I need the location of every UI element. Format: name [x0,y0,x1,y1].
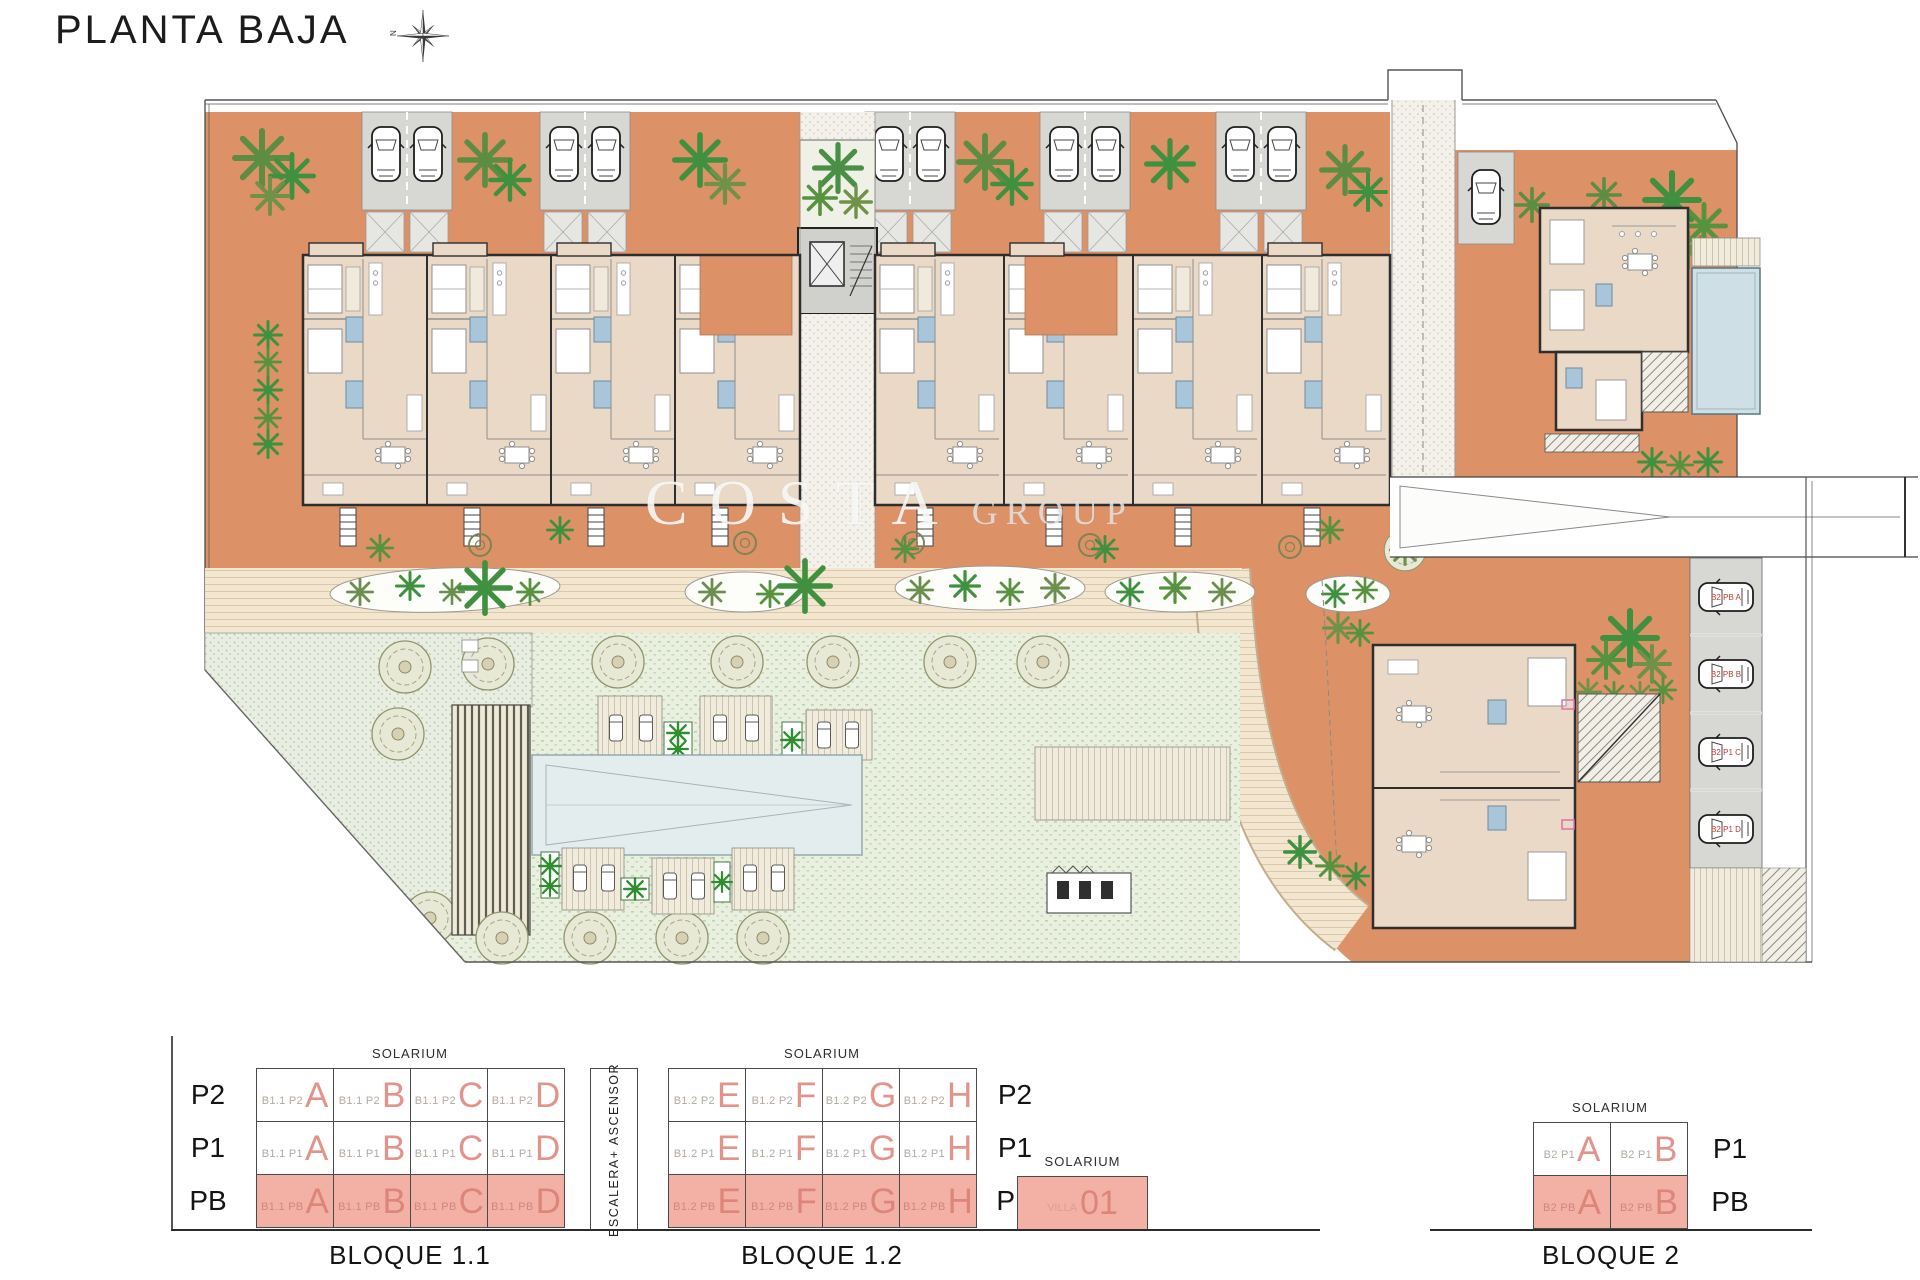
unit-cell-b12-p2-e: B1.2 P2E [669,1069,746,1122]
unit-cell-b2-pb-a: B2 PBA [1534,1176,1611,1229]
unit-cell-b2-p1-b: B2 P1B [1611,1123,1688,1176]
inner-patio [1025,255,1117,335]
floor-label-p1: P1 [170,1121,246,1174]
unit-cell-b12-p1-f: B1.2 P1F [746,1122,823,1175]
unit-cell-b12-p1-e: B1.2 P1E [669,1122,746,1175]
floor-label-p2: P2 [170,1068,246,1121]
unit-cell-b12-p1-g: B1.2 P1G [823,1122,900,1175]
compass-north-label: N [389,30,398,36]
unit-cell-b11-pb-a: B1.1 PBA [257,1175,334,1228]
bloque-1-1-title: BLOQUE 1.1 [256,1240,564,1271]
plan-sheet: B2 PB A B2 PB B B2 P1 C B2 P1 D PLANTA B… [0,0,1920,1280]
solarium-label-bloque11: SOLARIUM [256,1046,564,1061]
unit-cell-b11-p1-d: B1.1 P1D [488,1122,565,1175]
unit-cell-b12-pb-h: B1.2 PBH [900,1175,977,1228]
deck-band [1035,747,1230,820]
solarium-label-villa: SOLARIUM [1017,1154,1148,1169]
deck-planter [712,862,732,902]
car-icon [1088,127,1124,181]
solarium-label-bloque12: SOLARIUM [668,1046,976,1061]
unit-cell-b11-p1-b: B1.1 P1B [334,1122,411,1175]
unit-cell-b11-p2-b: B1.1 P2B [334,1069,411,1122]
unit-cell-b11-p2-d: B1.1 P2D [488,1069,565,1122]
pergola [452,705,530,935]
car-icon [546,127,582,181]
unit-cell-b12-p2-h: B1.2 P2H [900,1069,977,1122]
parking-label: B2 P1 C [1711,748,1741,757]
car-icon [588,127,624,181]
car-icon [1222,127,1258,181]
unit-cell-b12-pb-f: B1.2 PBF [746,1175,823,1228]
legend-ground-line [171,1229,1320,1231]
unit-cell-b12-pb-g: B1.2 PBG [823,1175,900,1228]
unit-cell-b2-pb-b: B2 PBB [1611,1176,1688,1229]
unit-cell-b12-p2-g: B1.2 P2G [823,1069,900,1122]
central-core-strip [798,112,877,633]
legend-ground-line [1430,1229,1812,1231]
car-icon [1046,127,1082,181]
villa-parking-bay [1458,152,1514,244]
unit-cell-b11-pb-d: B1.1 PBD [488,1175,565,1228]
car-icon [871,127,907,181]
north-gravel-path [1392,100,1455,477]
car-icon [368,127,404,181]
unit-cell-b11-p2-c: B1.1 P2C [411,1069,488,1122]
watermark: COSTA GROUP [645,466,1134,540]
page-title: PLANTA BAJA [55,8,350,53]
bloque-2-legend-grid: B2 P1A B2 P1B B2 PBA B2 PBB [1533,1122,1688,1229]
unit-cell-b12-p2-f: B1.2 P2F [746,1069,823,1122]
watermark-word2: GROUP [972,491,1134,533]
car-icon [410,127,446,181]
floor-label-p1-bloque2: P1 [1695,1122,1765,1175]
unit-cell-b12-p1-h: B1.2 P1H [900,1122,977,1175]
bloque-2-title: BLOQUE 2 [1533,1240,1689,1271]
unit-cell-b11-pb-b: B1.1 PBB [334,1175,411,1228]
deck-planter [664,722,692,759]
inner-patio [700,255,792,335]
watermark-word1: COSTA [645,466,960,540]
unit-cell-b11-pb-c: B1.1 PBC [411,1175,488,1228]
unit-cell-b11-p1-a: B1.1 P1A [257,1122,334,1175]
bloque-2-stairs [1578,694,1660,782]
pool [532,755,862,855]
access-road [1390,477,1920,557]
solarium-label-bloque2: SOLARIUM [1533,1100,1687,1115]
parking-label: B2 PB A [1711,593,1741,602]
parking-label: B2 P1 D [1711,825,1741,834]
deck-planter [781,722,803,758]
villa-deck [1692,238,1760,266]
bloque-1-1-legend-grid: B1.1 P2A B1.1 P2B B1.1 P2C B1.1 P2D B1.1… [256,1068,565,1228]
pool-pavilion [1047,866,1131,913]
floor-label-pb: PB [170,1174,246,1227]
unit-cell-b11-p2-a: B1.1 P2A [257,1069,334,1122]
floor-label-pb-bloque2: PB [1695,1175,1765,1228]
bloque-1-2-title: BLOQUE 1.2 [668,1240,976,1271]
unit-cell-b2-p1-a: B2 P1A [1534,1123,1611,1176]
car-icon [913,127,949,181]
car-icon [1468,170,1504,224]
deck-planter [621,878,649,900]
floor-label-p2-right: P2 [985,1068,1045,1121]
villa-pool [1692,268,1760,414]
stair-elevator-core [798,228,877,314]
car-icon [1264,127,1300,181]
compass-icon: N [388,6,458,66]
sun-decks-bottom [539,848,794,914]
unit-cell-b12-pb-e: B1.2 PBE [669,1175,746,1228]
bloque-1-2-legend-grid: B1.2 P2E B1.2 P2F B1.2 P2G B1.2 P2H B1.2… [668,1068,977,1228]
parking-label: B2 PB B [1711,670,1741,679]
deck-planter [539,852,561,898]
unit-cell-b11-p1-c: B1.1 P1C [411,1122,488,1175]
escalera-ascensor-box: ESCALERA+ ASCENSOR [590,1068,638,1231]
villa-cell: VILLA 01 [1017,1176,1148,1230]
